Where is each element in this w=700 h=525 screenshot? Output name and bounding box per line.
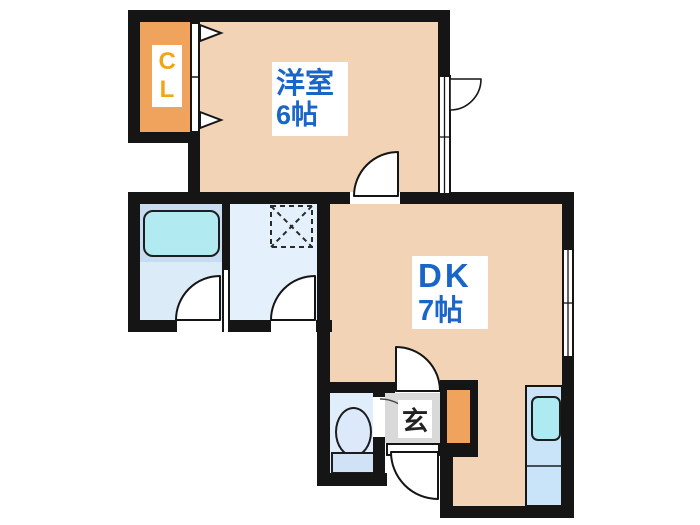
western-room-size: 6帖 [272,100,348,130]
door-arc-washroom [271,276,315,320]
western-room-name: 洋室 [272,68,348,100]
closet-label: CL [152,45,182,107]
closet-label-text: CL [159,48,176,103]
dk-name: DK [412,258,488,295]
dk-size: 7帖 [412,295,488,327]
washing-machine-space-icon [271,206,312,247]
dk-label: DK 7帖 [412,256,488,329]
door-arc-western-window [450,79,481,110]
folding-door-triangle-icon [200,112,221,128]
western-room-label: 洋室 6帖 [272,62,348,136]
floorplan: CL 洋室 6帖 DK 7帖 玄 [0,0,700,525]
entrance-label-text: 玄 [402,401,428,438]
folding-door-triangle-icon [200,25,221,41]
door-arc-bathroom [176,276,220,320]
symbol-overlay [0,0,700,525]
door-arc-western-dk [354,152,398,196]
door-arc-entrance-hall [396,347,440,391]
door-arc-front-door [391,452,438,499]
entrance-label: 玄 [398,400,432,438]
